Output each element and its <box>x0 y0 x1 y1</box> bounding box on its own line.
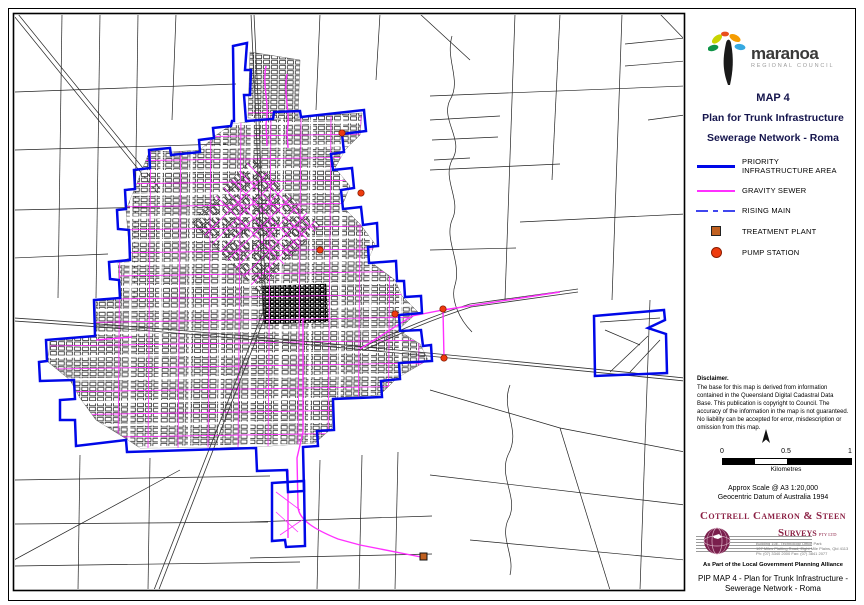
pump-station-symbol <box>711 247 722 258</box>
disclaimer-heading: Disclaimer. <box>697 376 849 382</box>
legend-item-gravity-sewer: GRAVITY SEWER <box>690 186 856 195</box>
disclaimer: Disclaimer. The base for this map is der… <box>697 376 849 432</box>
legend-item-priority-area: PRIORITY INFRASTRUCTURE AREA <box>690 157 856 175</box>
priority-area-line-symbol <box>697 165 735 168</box>
map-sheet: maranoa REGIONAL COUNCIL MAP 4 Plan for … <box>0 0 864 605</box>
map-title-block: MAP 4 Plan for Trunk Infrastructure Sewe… <box>690 92 856 144</box>
map-subtitle: Sewerage Network - Roma <box>690 132 856 144</box>
north-arrow-icon <box>758 428 774 446</box>
title-panel: maranoa REGIONAL COUNCIL MAP 4 Plan for … <box>690 0 856 605</box>
cbd-dense-blocks <box>262 284 328 324</box>
legend: PRIORITY INFRASTRUCTURE AREA GRAVITY SEW… <box>690 157 856 269</box>
treatment-plant-marker <box>420 553 427 560</box>
disclaimer-body: The base for this map is derived from in… <box>697 384 849 432</box>
map-title: Plan for Trunk Infrastructure <box>690 112 856 124</box>
council-tree-icon <box>708 29 748 85</box>
gravity-sewer-line-symbol <box>697 190 735 192</box>
legend-item-treatment-plant: TREATMENT PLANT <box>690 226 856 236</box>
legend-item-rising-main: RISING MAIN <box>690 206 856 215</box>
council-name: maranoa <box>751 45 834 62</box>
legend-item-pump-station: PUMP STATION <box>690 247 856 258</box>
council-tagline: REGIONAL COUNCIL <box>751 64 834 70</box>
treatment-plant-symbol <box>711 226 721 236</box>
rising-main-line-symbol <box>696 208 736 214</box>
council-logo: maranoa REGIONAL COUNCIL <box>708 26 848 88</box>
map-number: MAP 4 <box>690 92 856 104</box>
